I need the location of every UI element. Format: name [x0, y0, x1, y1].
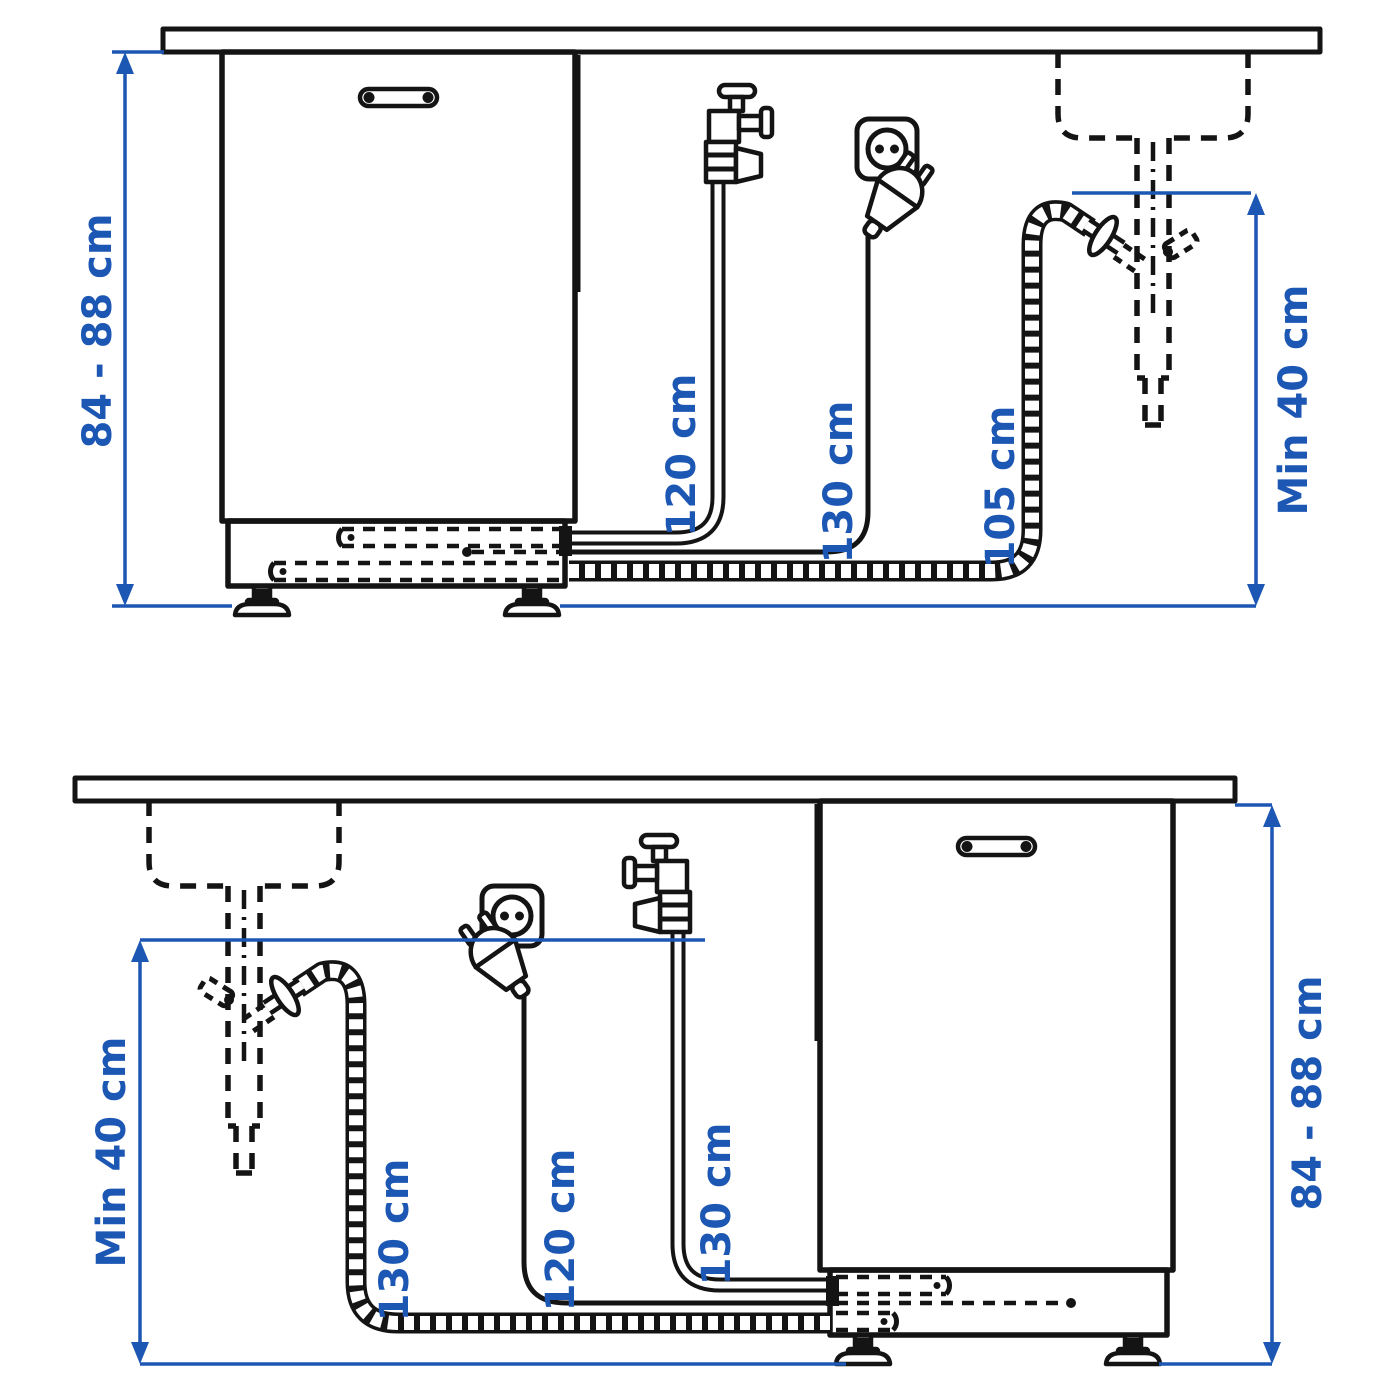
supply-hose-length-label: 130 cm [694, 1123, 740, 1286]
supply-hose-length-label: 120 cm [659, 374, 705, 537]
faucet-icon [624, 835, 690, 932]
drain-hose [242, 971, 830, 1323]
drain-height-label: Min 40 cm [89, 1037, 135, 1268]
countertop [163, 29, 1320, 52]
plinth-hose-stubs [826, 1276, 1076, 1330]
diagram-bottom: Min 40 cm 130 cm 120 cm 130 cm 84 - 88 c… [75, 778, 1331, 1364]
plinth-hose-stubs [270, 526, 572, 580]
hose-entry-grommet [559, 526, 572, 556]
installation-diagram: 84 - 88 cm 120 cm 130 cm 105 cm Min 40 c… [0, 0, 1400, 1400]
drain-hose-length-label: 130 cm [372, 1159, 418, 1322]
dishwasher-cabinet [817, 801, 1173, 1364]
drain-hose-length-label: 105 cm [978, 406, 1024, 569]
power-cable-length-label: 120 cm [538, 1149, 584, 1312]
dimension-annotations-bottom: Min 40 cm 130 cm 120 cm 130 cm 84 - 88 c… [89, 805, 1331, 1364]
power-cable-length-label: 130 cm [816, 401, 862, 564]
faucet-icon [706, 85, 772, 182]
sink-icon [1058, 52, 1248, 425]
height-range-label: 84 - 88 cm [1285, 975, 1331, 1210]
diagram-canvas: 84 - 88 cm 120 cm 130 cm 105 cm Min 40 c… [0, 0, 1400, 1400]
drain-height-label: Min 40 cm [1271, 285, 1317, 516]
countertop [75, 778, 1235, 801]
height-range-label: 84 - 88 cm [75, 213, 121, 448]
diagram-top: 84 - 88 cm 120 cm 130 cm 105 cm Min 40 c… [75, 29, 1320, 615]
hose-entry-grommet [826, 1276, 839, 1306]
dishwasher-cabinet [222, 52, 578, 615]
